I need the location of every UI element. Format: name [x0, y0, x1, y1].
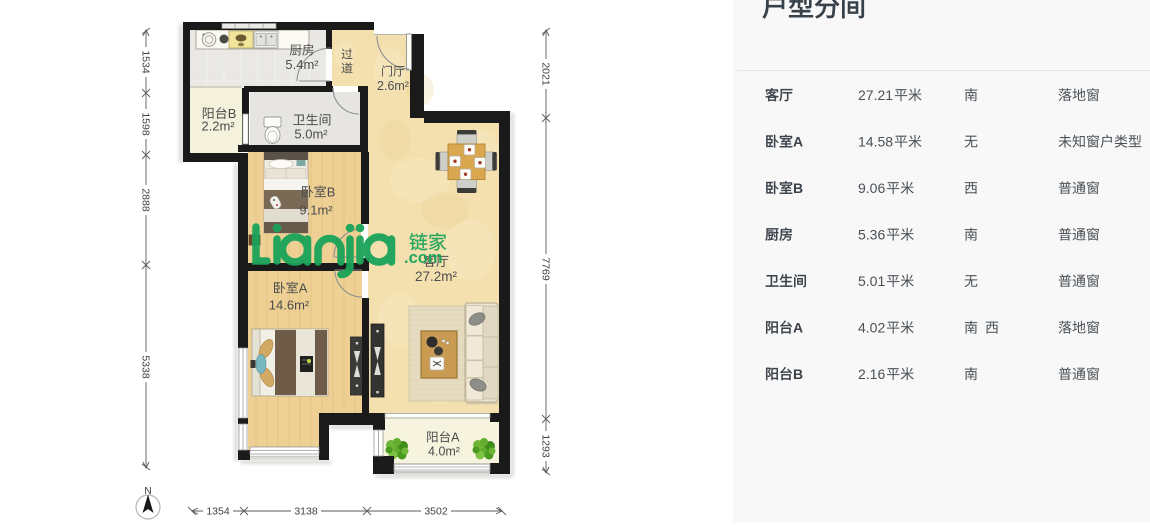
svg-text:2021: 2021 [540, 62, 552, 86]
svg-text:5.4m²: 5.4m² [285, 57, 319, 72]
svg-text:5.0m²: 5.0m² [294, 127, 328, 142]
svg-text:4.0m²: 4.0m² [428, 445, 460, 459]
svg-text:1534: 1534 [140, 50, 152, 74]
svg-text:3502: 3502 [424, 506, 448, 518]
svg-text:2.16: 2.16 [858, 366, 885, 382]
svg-text:1354: 1354 [206, 506, 230, 518]
svg-text:B: B [793, 180, 803, 196]
svg-text:3138: 3138 [294, 506, 318, 518]
svg-text:A: A [793, 320, 803, 336]
svg-text:4.02: 4.02 [858, 320, 885, 336]
svg-text:B: B [793, 366, 803, 382]
svg-text:5338: 5338 [140, 355, 152, 379]
svg-text:B: B [327, 185, 336, 200]
svg-text:.com: .com [404, 249, 443, 267]
svg-text:9.06: 9.06 [858, 180, 885, 196]
svg-text:2888: 2888 [140, 188, 152, 212]
svg-text:14.58: 14.58 [858, 134, 893, 150]
svg-text:N: N [144, 486, 151, 497]
svg-text:A: A [299, 281, 308, 296]
svg-text:14.6m²: 14.6m² [269, 298, 310, 313]
svg-text:2.2m²: 2.2m² [201, 119, 235, 134]
svg-text:2.6m²: 2.6m² [377, 79, 409, 93]
svg-text:A: A [451, 431, 460, 445]
svg-text:7769: 7769 [540, 257, 552, 281]
svg-text:9.1m²: 9.1m² [299, 203, 333, 218]
svg-text:1598: 1598 [140, 112, 152, 136]
svg-text:A: A [793, 134, 803, 150]
svg-text:5.36: 5.36 [858, 227, 885, 243]
svg-text:5.01: 5.01 [858, 273, 885, 289]
svg-text:27.2m²: 27.2m² [415, 269, 458, 284]
svg-text:27.21: 27.21 [858, 87, 893, 103]
svg-text:1293: 1293 [540, 434, 552, 458]
